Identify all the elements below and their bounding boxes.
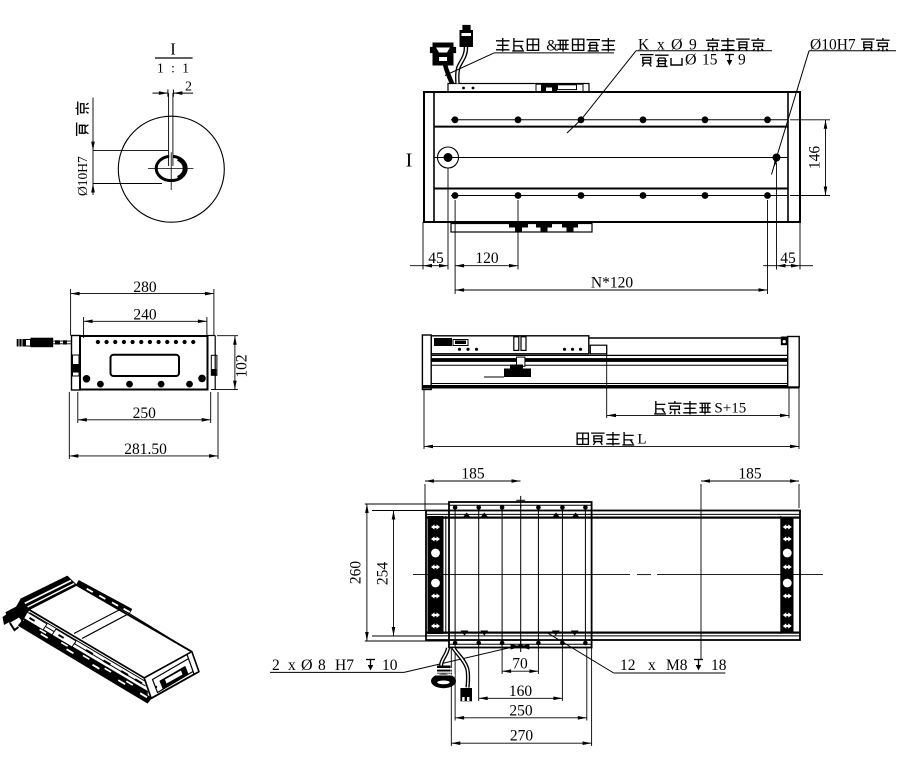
svg-text:70: 70 <box>512 656 528 673</box>
svg-text:15: 15 <box>702 52 718 69</box>
svg-text:N*120: N*120 <box>591 275 633 292</box>
svg-text:270: 270 <box>510 728 534 745</box>
svg-text:Ø: Ø <box>301 657 313 674</box>
svg-text:102: 102 <box>234 354 251 377</box>
svg-text:8: 8 <box>318 657 326 674</box>
svg-text:146: 146 <box>807 146 824 170</box>
svg-text:250: 250 <box>133 405 157 422</box>
svg-text:45: 45 <box>428 250 444 267</box>
svg-text:&: & <box>546 38 558 55</box>
svg-text:x: x <box>288 657 296 674</box>
svg-text:x: x <box>648 657 656 674</box>
svg-text:L: L <box>637 432 646 448</box>
svg-text:I: I <box>170 40 176 59</box>
svg-text:S+15: S+15 <box>714 401 746 417</box>
svg-text:240: 240 <box>133 306 157 323</box>
svg-text:280: 280 <box>133 279 157 296</box>
svg-text:I: I <box>406 150 413 172</box>
svg-text:45: 45 <box>780 250 796 267</box>
svg-text:9: 9 <box>738 52 746 69</box>
svg-text:12: 12 <box>620 657 636 674</box>
svg-text:250: 250 <box>509 702 533 719</box>
svg-text:281.50: 281.50 <box>124 441 167 458</box>
svg-text:M8: M8 <box>666 657 688 674</box>
svg-text:2: 2 <box>272 657 280 674</box>
svg-text:18: 18 <box>711 657 727 674</box>
svg-text:Ø10H7: Ø10H7 <box>75 156 90 196</box>
svg-text:2: 2 <box>185 80 192 95</box>
svg-text:160: 160 <box>509 683 533 700</box>
svg-text:260: 260 <box>348 561 365 585</box>
svg-text:185: 185 <box>461 465 485 482</box>
svg-text:H7: H7 <box>335 657 354 674</box>
svg-text:185: 185 <box>738 465 762 482</box>
svg-text:1 : 1: 1 : 1 <box>157 61 191 76</box>
svg-text:10: 10 <box>382 657 398 674</box>
svg-text:254: 254 <box>375 562 392 586</box>
svg-text:Ø: Ø <box>685 52 697 69</box>
svg-text:120: 120 <box>475 250 499 267</box>
